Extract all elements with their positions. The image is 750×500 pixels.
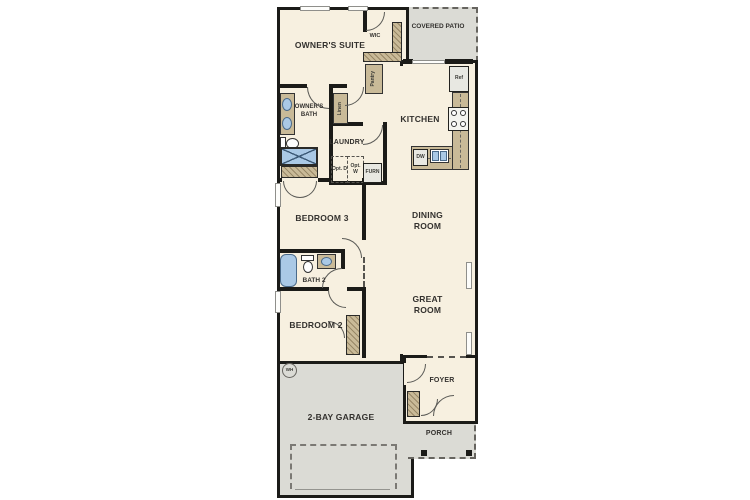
label-bath2: BATH 2 xyxy=(295,277,333,285)
window-bed3-left xyxy=(275,183,281,207)
bath2-toilet-bowl xyxy=(303,261,313,273)
furnace-label: FURN xyxy=(366,170,380,176)
wall-bed2-top-right xyxy=(347,287,366,291)
pantry-closet: Pantry xyxy=(365,64,383,94)
floor-plan: Pantry Linen Opt. D Opt. W FURN Ref DW xyxy=(0,0,750,500)
label-foyer: FOYER xyxy=(420,377,464,386)
bath2-sink xyxy=(321,257,332,266)
opt-dryer-label: Opt. D xyxy=(332,167,347,173)
label-bedroom3: BEDROOM 3 xyxy=(284,213,360,224)
stove-burner-4 xyxy=(460,121,466,127)
kitchen-counter-right-line xyxy=(460,94,461,168)
label-dining-room: DINING ROOM xyxy=(400,210,455,231)
garage-door-track xyxy=(290,444,397,489)
label-wic: WIC xyxy=(362,33,388,40)
label-bedroom2: BEDROOM 2 xyxy=(280,320,352,331)
foyer-opening-dashed xyxy=(427,356,466,358)
covered-patio-area xyxy=(403,7,478,62)
wall-laundry-right xyxy=(383,122,387,185)
owners-shower xyxy=(280,147,318,166)
kitchen-sink-basin-1 xyxy=(432,151,439,161)
wic-wall-hatch-bottom xyxy=(363,52,402,62)
porch-post-right xyxy=(466,450,472,456)
pantry-label: Pantry xyxy=(371,71,377,87)
dishwasher-label: DW xyxy=(416,155,424,161)
wall-bed2-right xyxy=(362,287,366,358)
window-great-right-1 xyxy=(466,262,472,289)
furnace: FURN xyxy=(363,163,382,183)
refrigerator-label: Ref xyxy=(455,76,463,82)
dishwasher: DW xyxy=(413,149,428,166)
window-wic-top xyxy=(348,6,368,11)
linen-label: Linen xyxy=(338,102,344,115)
label-laundry: LAUNDRY xyxy=(324,139,370,148)
foyer-coat-closet xyxy=(407,391,420,417)
water-heater: WH xyxy=(282,363,297,378)
garage-vehicle-opening-line xyxy=(295,489,390,490)
window-bed2-left xyxy=(275,291,281,313)
refrigerator: Ref xyxy=(449,66,469,92)
wall-bed3-top-left xyxy=(277,178,282,182)
stove-burner-2 xyxy=(460,110,466,116)
wall-bath2-top xyxy=(277,249,345,253)
label-owners-suite: OWNER'S SUITE xyxy=(292,40,368,51)
label-kitchen: KITCHEN xyxy=(388,114,452,125)
label-great-room: GREAT ROOM xyxy=(400,294,455,315)
hall-greatroom-dashed-opening xyxy=(363,257,365,287)
wall-kitchen-top-right xyxy=(445,59,473,64)
window-suite-top xyxy=(300,6,330,11)
opt-washer-label: Opt. W xyxy=(348,164,363,175)
label-porch: PORCH xyxy=(415,430,463,439)
water-heater-label: WH xyxy=(286,368,294,373)
window-great-right-2 xyxy=(466,332,472,355)
porch-post-left xyxy=(421,450,427,456)
optional-washer: Opt. W xyxy=(347,156,364,183)
patio-sliding-door xyxy=(412,60,445,64)
wall-suite-bath-left xyxy=(277,84,307,88)
kitchen-sink-basin-2 xyxy=(440,151,447,161)
label-covered-patio: COVERED PATIO xyxy=(406,23,470,31)
bed3-closet-shelf xyxy=(281,166,318,178)
label-owners-bath: OWNER'S BATH xyxy=(288,104,330,119)
label-garage: 2-BAY GARAGE xyxy=(305,412,377,423)
optional-dryer: Opt. D xyxy=(331,156,348,183)
wall-bed3-right-upper xyxy=(362,178,366,240)
